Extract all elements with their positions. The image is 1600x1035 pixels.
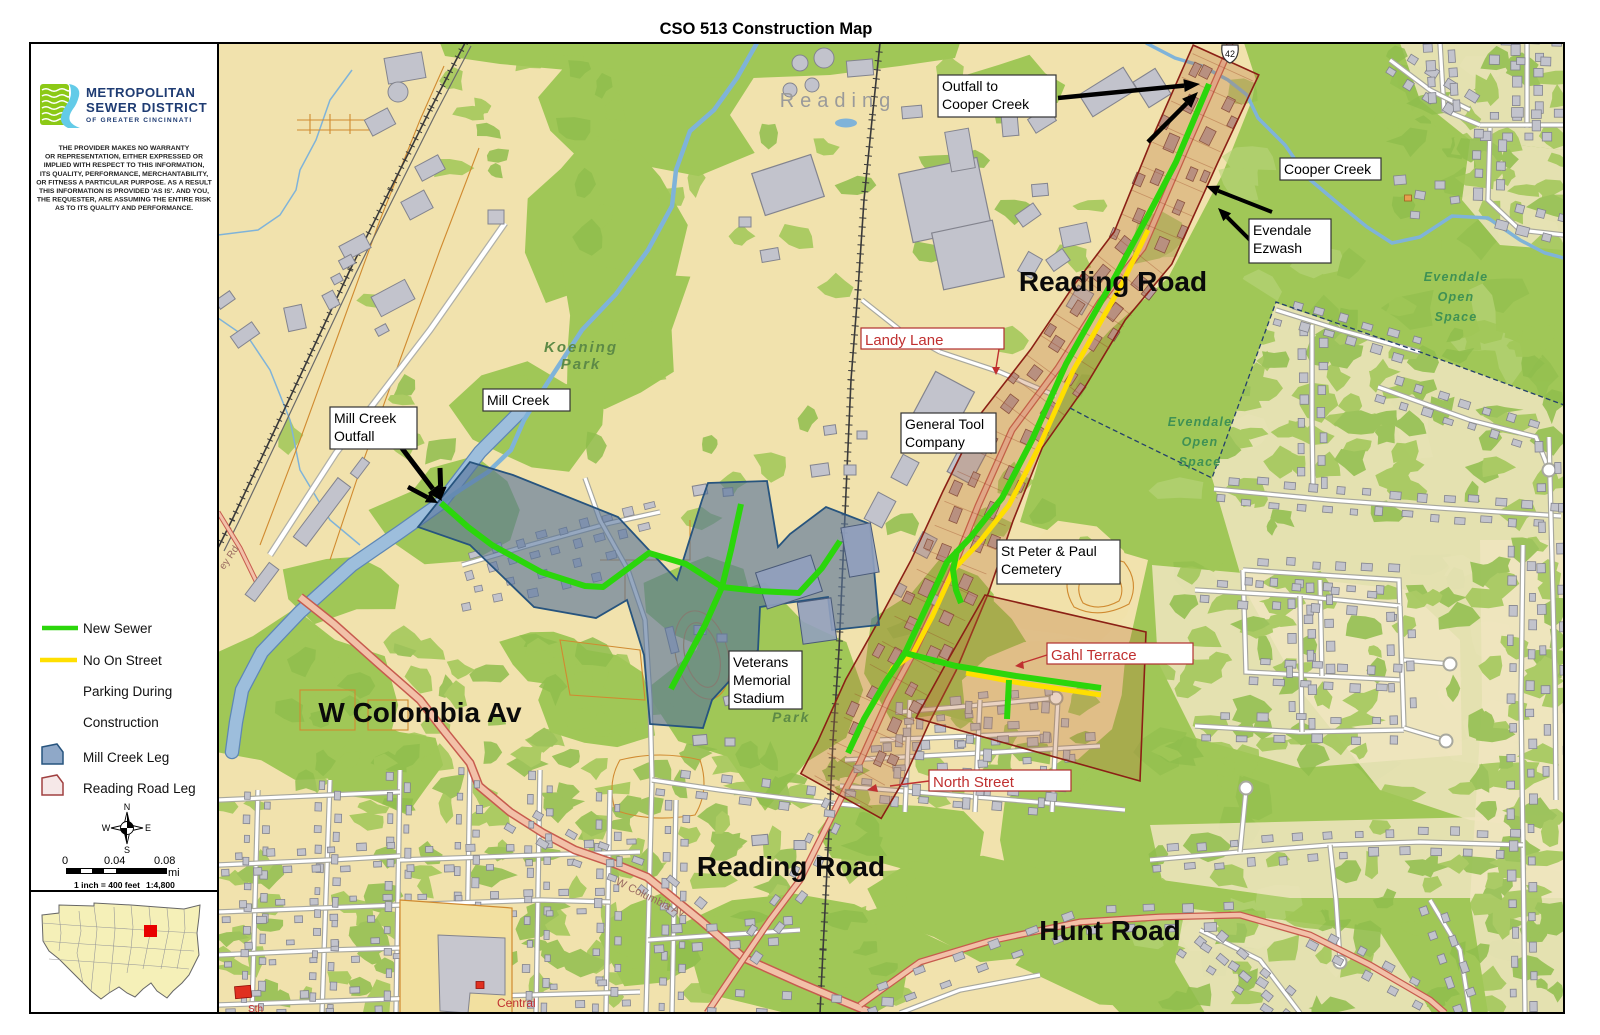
svg-text:42: 42 [1225,49,1235,59]
svg-text:Evendale: Evendale [1424,270,1489,284]
svg-text:Memorial: Memorial [733,672,791,688]
svg-text:0: 0 [62,855,68,867]
svg-text:Open: Open [1438,290,1475,304]
svg-text:Koening: Koening [544,339,618,356]
svg-text:AS TO ITS QUALITY AND PERFORMA: AS TO ITS QUALITY AND PERFORMANCE. [55,205,193,212]
svg-text:Cemetery: Cemetery [1001,561,1062,577]
svg-text:W Colombia Av: W Colombia Av [318,697,522,728]
svg-text:Mill Creek: Mill Creek [334,410,397,426]
svg-text:SEWER DISTRICT: SEWER DISTRICT [86,100,207,115]
svg-text:0.08: 0.08 [154,855,175,867]
svg-text:OF GREATER CINCINNATI: OF GREATER CINCINNATI [86,117,192,124]
svg-text:CSO 513 Construction Map: CSO 513 Construction Map [660,20,873,38]
svg-text:Reading Road: Reading Road [1019,266,1207,297]
svg-text:Gahl Terrace: Gahl Terrace [1051,647,1137,664]
svg-text:OR REPRESENTATION, EITHER EXPR: OR REPRESENTATION, EITHER EXPRESSED OR [45,154,203,161]
svg-text:E: E [145,823,151,833]
svg-text:Space: Space [1179,455,1222,469]
svg-text:Evendale: Evendale [1253,222,1312,238]
svg-text:Mill Creek: Mill Creek [487,392,550,408]
svg-text:Veterans: Veterans [733,654,788,670]
svg-text:THE PROVIDER MAKES NO WARRANTY: THE PROVIDER MAKES NO WARRANTY [59,145,190,152]
svg-text:Stadium: Stadium [733,690,784,706]
svg-text:IMPLIED WITH RESPECT TO THIS I: IMPLIED WITH RESPECT TO THIS INFORMATION… [44,162,205,169]
svg-text:Open: Open [1182,435,1219,449]
svg-text:1 inch = 400 feet: 1 inch = 400 feet [74,880,140,890]
svg-text:W: W [102,823,111,833]
svg-text:Construction: Construction [83,715,159,730]
svg-text:mi: mi [168,867,180,879]
svg-text:Company: Company [905,434,965,450]
svg-text:Reading: Reading [780,90,897,112]
svg-text:Cooper Creek: Cooper Creek [942,96,1030,112]
svg-text:ITS QUALITY, PERFORMANCE, MERC: ITS QUALITY, PERFORMANCE, MERCHANTABILIT… [40,171,208,178]
svg-text:N: N [124,802,131,812]
svg-text:S: S [124,845,130,855]
svg-text:OR FITNESS A PARTICULAR PURPOS: OR FITNESS A PARTICULAR PURPOSE. AS A RE… [36,179,212,186]
svg-text:Hunt Road: Hunt Road [1039,915,1181,946]
svg-text:Central: Central [497,996,536,1010]
svg-text:Evendale: Evendale [1168,415,1233,429]
svg-text:General Tool: General Tool [905,416,984,432]
svg-text:Cooper Creek: Cooper Creek [1284,161,1372,177]
svg-text:Outfall to: Outfall to [942,78,998,94]
svg-text:St Peter & Paul: St Peter & Paul [1001,543,1097,559]
svg-text:Park: Park [772,709,810,725]
svg-text:Reading Road Leg: Reading Road Leg [83,781,196,796]
svg-text:Landy Lane: Landy Lane [865,332,943,349]
svg-text:THE REQUESTER, ARE ASSUMING TH: THE REQUESTER, ARE ASSUMING THE ENTIRE R… [37,197,211,204]
svg-text:Space: Space [1435,310,1478,324]
svg-text:Outfall: Outfall [334,428,374,444]
svg-text:1:4,800: 1:4,800 [146,880,175,890]
svg-text:THIS INFORMATION IS PROVIDED ': THIS INFORMATION IS PROVIDED 'AS IS'. AN… [39,188,209,195]
svg-text:0.04: 0.04 [104,855,125,867]
svg-text:Reading Road: Reading Road [697,851,885,882]
svg-text:Ezwash: Ezwash [1253,240,1302,256]
svg-text:Park: Park [561,356,602,373]
svg-text:Mill Creek Leg: Mill Creek Leg [83,750,169,765]
svg-text:No On Street: No On Street [83,653,162,668]
svg-text:North Street: North Street [933,774,1015,791]
svg-text:Parking During: Parking During [83,684,172,699]
svg-text:METROPOLITAN: METROPOLITAN [86,85,195,100]
svg-text:New Sewer: New Sewer [83,621,153,636]
